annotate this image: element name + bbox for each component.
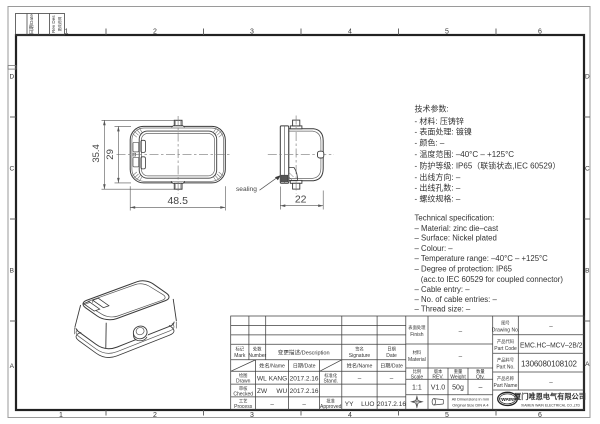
svg-text:Original Size DIN A 4: Original Size DIN A 4: [452, 403, 489, 408]
svg-text:变更描述/Description: 变更描述/Description: [278, 349, 330, 357]
svg-text:4: 4: [348, 412, 352, 419]
svg-text:A: A: [10, 363, 15, 370]
svg-text:3: 3: [250, 412, 254, 419]
svg-text:ZW: ZW: [257, 388, 268, 395]
svg-text:Part Name: Part Name: [494, 383, 518, 389]
svg-text:2017.2.16: 2017.2.16: [290, 375, 319, 382]
svg-text:- 颜色: –: - 颜色: –: [415, 138, 445, 148]
svg-text:B: B: [10, 268, 14, 275]
svg-text:– Degree of protection: IP65: – Degree of protection: IP65: [415, 264, 513, 273]
svg-text:– Temperature range: –40°C –: – Temperature range: –40°C – +125°C: [415, 254, 549, 263]
svg-text:Weight: Weight: [450, 375, 466, 381]
svg-text:Material: Material: [408, 357, 426, 363]
svg-text:D: D: [9, 74, 14, 81]
svg-text:处数: 处数: [253, 346, 262, 353]
svg-text:LUO: LUO: [361, 401, 374, 408]
svg-text:Checked: Checked: [233, 391, 253, 397]
svg-text:(acc.to IEC 60529 for coupled: (acc.to IEC 60529 for coupled connector): [421, 275, 564, 284]
svg-text:– Thread size: –: – Thread size: –: [415, 304, 471, 313]
svg-text:Scale: Scale: [411, 375, 424, 381]
svg-text:Stand.: Stand.: [323, 379, 337, 385]
svg-text:WAIN: WAIN: [501, 397, 514, 403]
svg-text:29: 29: [105, 149, 116, 160]
svg-text:D: D: [585, 74, 590, 81]
svg-text:- 温度范围: –40°C – +125°C: - 温度范围: –40°C – +125°C: [415, 149, 515, 159]
svg-text:产品名称: 产品名称: [497, 375, 515, 382]
svg-text:–: –: [549, 379, 553, 386]
svg-text:Rev Des: Rev Des: [51, 15, 56, 33]
svg-text:B: B: [585, 268, 589, 275]
svg-text:48.5: 48.5: [167, 195, 188, 207]
svg-text:技术参数:: 技术参数:: [415, 104, 449, 114]
svg-text:更改说明: 更改说明: [57, 17, 62, 32]
svg-text:Approved: Approved: [320, 404, 342, 410]
svg-text:–: –: [302, 401, 306, 408]
svg-text:– Material: zinc die–cast: – Material: zinc die–cast: [415, 224, 499, 233]
svg-text:2: 2: [153, 29, 157, 36]
svg-text:- 出线方向: –: - 出线方向: –: [415, 172, 461, 182]
svg-text:YY: YY: [345, 401, 354, 408]
svg-text:–: –: [478, 385, 482, 392]
svg-text:日期/Date: 日期/Date: [380, 363, 403, 370]
svg-text:V1.0: V1.0: [431, 385, 446, 392]
svg-text:Drawn: Drawn: [236, 379, 251, 385]
svg-text:1: 1: [59, 412, 63, 419]
svg-text:A: A: [585, 361, 590, 368]
svg-text:35.4: 35.4: [91, 144, 102, 163]
svg-text:Process: Process: [234, 404, 253, 410]
svg-text:sealing: sealing: [236, 186, 257, 193]
svg-text:Finish: Finish: [410, 332, 424, 338]
svg-text:3: 3: [250, 29, 254, 36]
svg-text:EMC.HC–MCV–2B/2: EMC.HC–MCV–2B/2: [520, 341, 583, 350]
svg-text:Number: Number: [248, 353, 266, 359]
svg-text:材料: 材料: [413, 349, 422, 356]
svg-text:4: 4: [348, 29, 352, 36]
svg-text:5: 5: [445, 412, 449, 419]
svg-text:Part No.: Part No.: [496, 365, 514, 371]
svg-text:表面处理: 表面处理: [408, 324, 426, 331]
svg-text:5: 5: [445, 29, 449, 36]
svg-text:厦门唯恩电气有限公司: 厦门唯恩电气有限公司: [513, 392, 586, 401]
svg-text:C: C: [9, 166, 14, 173]
svg-text:- 螺纹规格: –: - 螺纹规格: –: [415, 194, 461, 204]
svg-text:日期/Date: 日期/Date: [293, 363, 316, 370]
svg-text:姓名/Name: 姓名/Name: [347, 362, 373, 370]
svg-text:All Dimensions in mm: All Dimensions in mm: [452, 397, 489, 402]
svg-text:工艺: 工艺: [239, 399, 248, 404]
svg-text:- 出线孔数: –: - 出线孔数: –: [415, 183, 461, 193]
svg-text:KANG: KANG: [269, 375, 287, 382]
svg-text:标记: 标记: [236, 346, 245, 353]
svg-text:XIAMEN WAIN ELECTRICAL CO.,LTD: XIAMEN WAIN ELECTRICAL CO.,LTD: [521, 403, 580, 407]
svg-text:– Surface: Nickel plated: – Surface: Nickel plated: [415, 234, 497, 243]
svg-text:姓名/Name: 姓名/Name: [259, 362, 285, 370]
svg-text:6: 6: [538, 412, 542, 419]
svg-text:–: –: [358, 375, 362, 382]
svg-text:22: 22: [295, 193, 307, 205]
svg-text:C: C: [585, 166, 590, 173]
svg-text:–: –: [270, 401, 274, 408]
svg-text:–: –: [390, 375, 394, 382]
svg-text:–: –: [459, 354, 463, 361]
svg-text:REV.: REV.: [432, 375, 443, 381]
svg-text:Technical specification:: Technical specification:: [415, 214, 495, 223]
svg-text:WL: WL: [257, 375, 267, 382]
svg-text:Mark: Mark: [234, 353, 246, 359]
svg-text:– No. of cable entries: –: – No. of cable entries: –: [415, 295, 498, 304]
svg-text:Date: Date: [386, 353, 397, 359]
svg-text:Drawing No.: Drawing No.: [492, 328, 520, 334]
svg-text:1:1: 1:1: [412, 385, 422, 392]
svg-text:产品代码: 产品代码: [497, 338, 515, 345]
svg-text:1: 1: [65, 29, 69, 36]
svg-text:Part Code: Part Code: [494, 346, 517, 352]
svg-text:6: 6: [538, 29, 542, 36]
svg-text:50g: 50g: [452, 385, 464, 392]
svg-text:2017.2.16: 2017.2.16: [377, 401, 406, 408]
svg-text:Qty.: Qty.: [476, 375, 485, 381]
svg-text:–: –: [459, 328, 463, 335]
svg-text:签名: 签名: [355, 346, 364, 353]
svg-text:- 防护等级: IP65（联锁状态,IEC 60529）: - 防护等级: IP65（联锁状态,IEC 60529）: [415, 161, 561, 171]
svg-text:1306080108102: 1306080108102: [521, 359, 578, 368]
svg-text:– Cable entry: –: – Cable entry: –: [415, 285, 471, 294]
svg-text:- 表面处理: 镀镍: - 表面处理: 镀镍: [415, 127, 472, 137]
svg-text:2: 2: [153, 412, 157, 419]
svg-text:- 材料: 压铸锌: - 材料: 压铸锌: [415, 116, 464, 126]
svg-text:– Colour: –: – Colour: –: [415, 244, 454, 253]
svg-text:–: –: [549, 323, 553, 330]
svg-text:产品料号: 产品料号: [497, 357, 514, 364]
svg-text:Signature: Signature: [349, 353, 371, 359]
svg-text:WU: WU: [276, 388, 287, 395]
svg-text:2017.2.16: 2017.2.16: [290, 388, 319, 395]
